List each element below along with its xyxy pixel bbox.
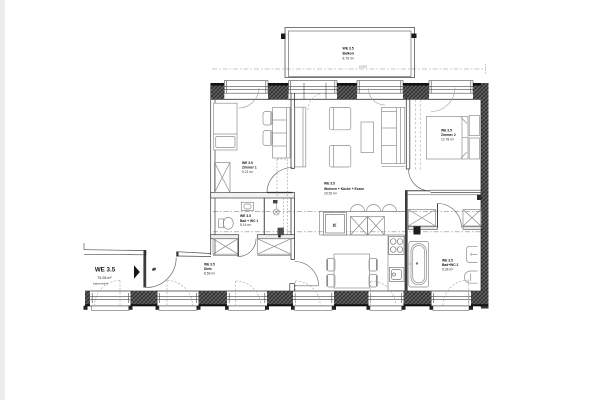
svg-text:5.28 m²: 5.28 m² bbox=[442, 267, 454, 271]
svg-text:barrierefrei: barrierefrei bbox=[93, 282, 108, 286]
svg-text:WE 3.5: WE 3.5 bbox=[441, 129, 452, 133]
svg-text:79.28 m²: 79.28 m² bbox=[97, 276, 112, 280]
svg-text:8.56 m²: 8.56 m² bbox=[204, 271, 216, 275]
svg-text:WE 3.5: WE 3.5 bbox=[442, 259, 453, 263]
svg-text:5.14 m²: 5.14 m² bbox=[240, 223, 252, 227]
svg-text:WE 3.5: WE 3.5 bbox=[240, 214, 251, 218]
svg-text:9.21 m²: 9.21 m² bbox=[242, 170, 254, 174]
svg-text:Balkon: Balkon bbox=[343, 52, 354, 56]
svg-text:K: K bbox=[333, 223, 336, 228]
svg-text:WE 3.5: WE 3.5 bbox=[204, 263, 215, 267]
svg-text:Wohnen + Küche + Essen: Wohnen + Küche + Essen bbox=[324, 187, 364, 191]
svg-text:12.78 m²: 12.78 m² bbox=[441, 137, 455, 141]
svg-text:WE 3.5: WE 3.5 bbox=[324, 182, 335, 186]
svg-text:(3.05): (3.05) bbox=[359, 64, 367, 68]
svg-text:WE 3.5: WE 3.5 bbox=[242, 161, 253, 165]
svg-text:WE 3.5: WE 3.5 bbox=[95, 267, 116, 274]
svg-text:WE 3.5: WE 3.5 bbox=[343, 47, 354, 51]
svg-text:29.53 m²: 29.53 m² bbox=[324, 192, 338, 196]
svg-text:8.76 m²: 8.76 m² bbox=[343, 57, 355, 61]
